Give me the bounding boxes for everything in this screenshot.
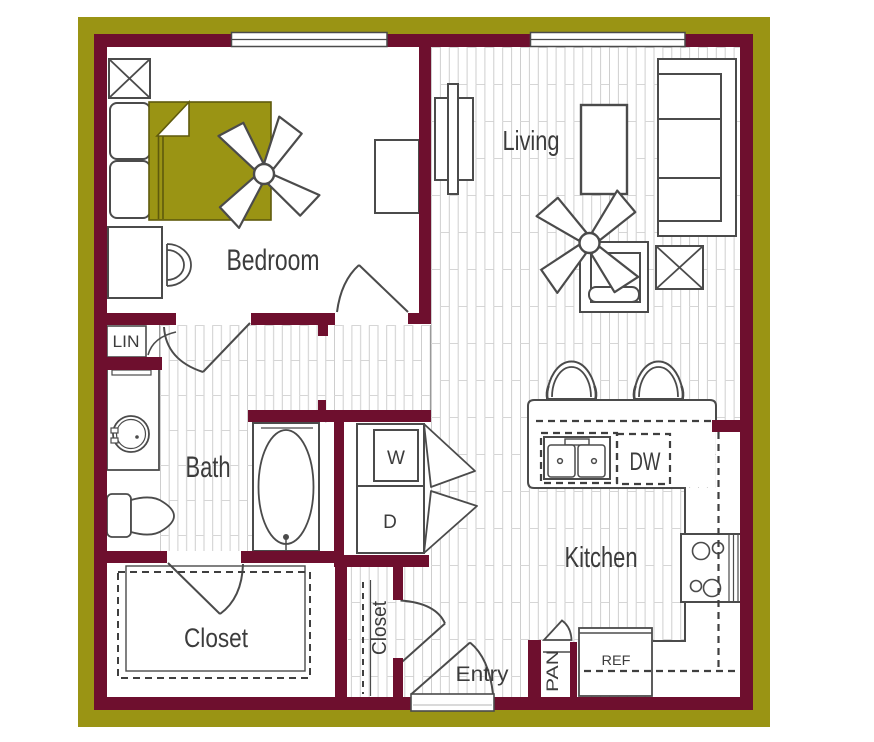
svg-text:PAN: PAN — [543, 650, 562, 692]
svg-text:Kitchen: Kitchen — [565, 542, 638, 574]
svg-text:Closet: Closet — [184, 623, 248, 653]
svg-text:D: D — [383, 512, 397, 533]
svg-text:Entry: Entry — [456, 663, 510, 686]
svg-text:LIN: LIN — [113, 332, 140, 351]
svg-text:Bath: Bath — [186, 451, 231, 484]
svg-text:DW: DW — [630, 448, 661, 476]
svg-text:Bedroom: Bedroom — [227, 244, 320, 277]
svg-text:Closet: Closet — [369, 601, 391, 655]
svg-text:Living: Living — [503, 125, 560, 156]
svg-text:W: W — [387, 448, 405, 469]
svg-text:REF: REF — [602, 652, 631, 668]
